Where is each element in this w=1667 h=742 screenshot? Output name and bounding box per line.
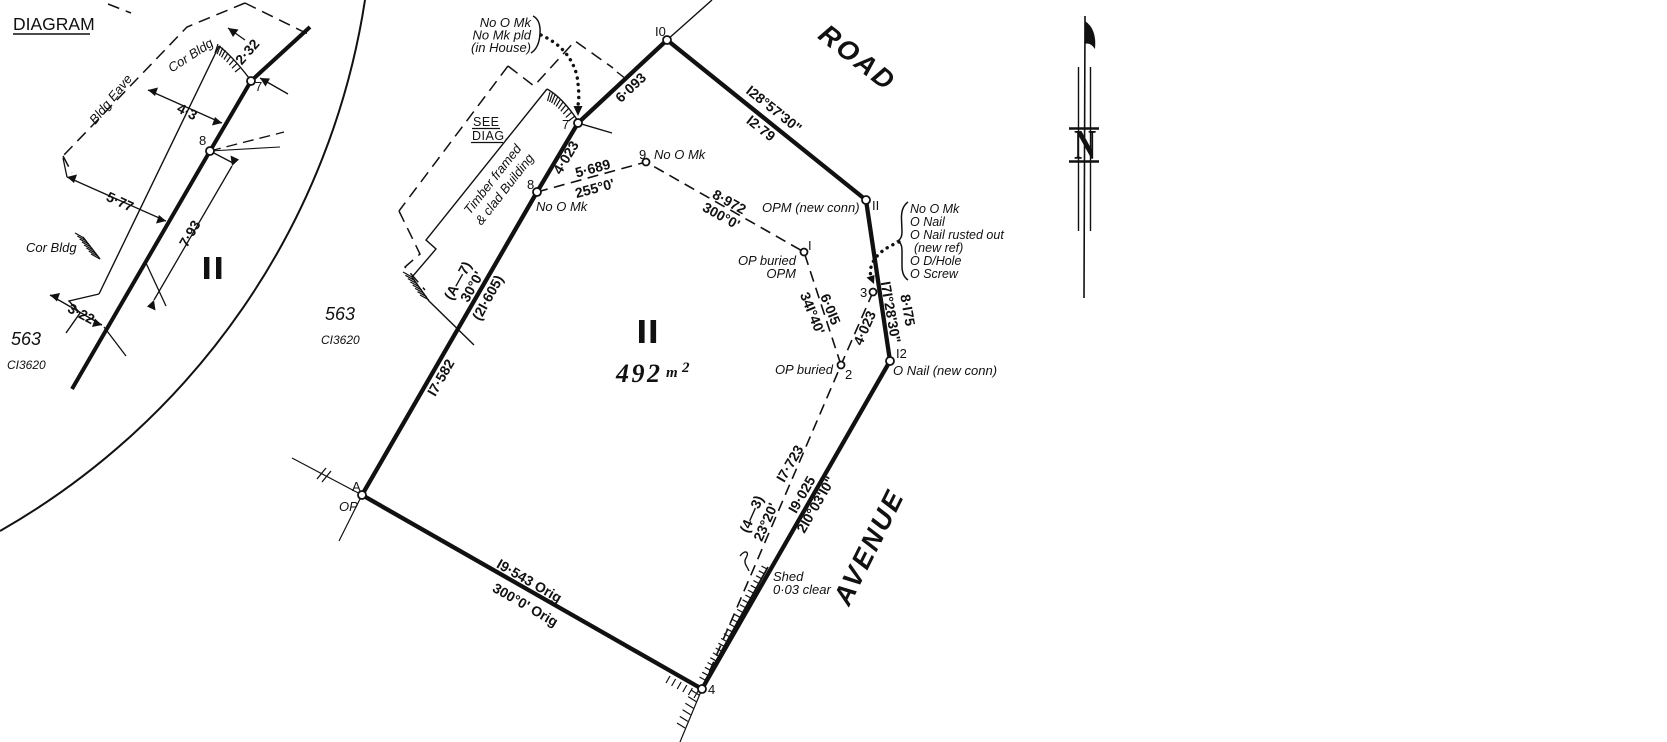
svg-text:I: I — [808, 238, 812, 253]
svg-text:O Nail: O Nail — [910, 215, 946, 229]
svg-text:Cor Bldg: Cor Bldg — [26, 240, 77, 255]
svg-text:O Nail (new conn): O Nail (new conn) — [893, 363, 997, 378]
svg-text:492: 492 — [615, 359, 663, 388]
svg-text:No O Mk: No O Mk — [536, 199, 589, 214]
svg-text:2: 2 — [681, 360, 690, 376]
svg-text:O Nail rusted out: O Nail rusted out — [910, 228, 1004, 242]
svg-text:I2: I2 — [896, 346, 907, 361]
svg-text:7: 7 — [255, 79, 262, 94]
svg-text:SEE: SEE — [473, 115, 500, 129]
svg-text:0·03 clear: 0·03 clear — [773, 582, 831, 597]
svg-text:A: A — [352, 479, 361, 494]
svg-text:OP buried: OP buried — [775, 362, 834, 377]
svg-text:N: N — [1074, 121, 1097, 168]
svg-text:m: m — [666, 365, 678, 381]
svg-text:O Screw: O Screw — [910, 267, 959, 281]
svg-text:I0: I0 — [655, 24, 666, 39]
svg-text:4: 4 — [708, 682, 715, 697]
svg-text:O D/Hole: O D/Hole — [910, 254, 961, 268]
svg-text:8: 8 — [527, 177, 534, 192]
svg-text:9: 9 — [639, 147, 646, 162]
svg-text:563: 563 — [11, 329, 41, 349]
svg-text:OPM: OPM — [766, 266, 796, 281]
svg-text:2: 2 — [845, 367, 852, 382]
svg-text:II: II — [872, 198, 879, 213]
svg-text:OPM (new conn): OPM (new conn) — [762, 200, 860, 215]
svg-text:7: 7 — [562, 117, 569, 132]
svg-text:No O Mk: No O Mk — [654, 147, 707, 162]
svg-text:563: 563 — [325, 304, 355, 324]
svg-text:CI3620: CI3620 — [321, 333, 360, 347]
svg-text:(new ref): (new ref) — [914, 241, 963, 255]
svg-text:DIAGRAM: DIAGRAM — [13, 14, 95, 34]
svg-text:(in House): (in House) — [471, 40, 531, 55]
svg-text:CI3620: CI3620 — [7, 358, 46, 372]
svg-text:3: 3 — [860, 285, 867, 300]
svg-text:No O Mk: No O Mk — [910, 202, 960, 216]
svg-text:OP: OP — [339, 499, 358, 514]
svg-text:8: 8 — [199, 133, 206, 148]
svg-text:DIAG.: DIAG. — [472, 129, 509, 143]
